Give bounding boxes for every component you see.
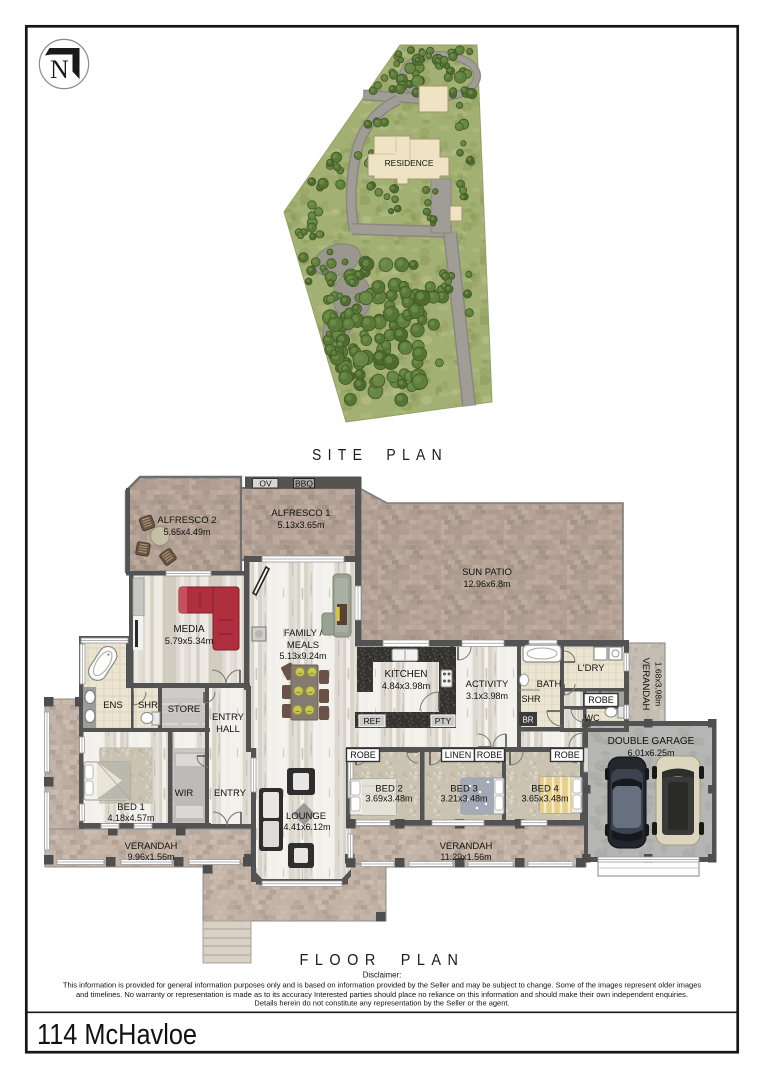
svg-text:Details herein do not constitu: Details herein do not constitute any rep…	[254, 999, 509, 1008]
svg-text:ACTIVITY: ACTIVITY	[466, 679, 509, 690]
svg-text:9.96x1.56m: 9.96x1.56m	[127, 852, 174, 862]
svg-text:MEDIA: MEDIA	[173, 624, 204, 635]
svg-text:VERANDAH: VERANDAH	[125, 841, 178, 852]
svg-text:3.1x3.98m: 3.1x3.98m	[466, 691, 508, 701]
svg-text:ALFRESCO 1: ALFRESCO 1	[271, 508, 330, 519]
svg-text:This information is provided f: This information is provided for general…	[63, 981, 702, 990]
svg-text:3.65x3.48m: 3.65x3.48m	[521, 794, 568, 804]
svg-text:MEALS: MEALS	[287, 640, 319, 651]
svg-text:RESIDENCE: RESIDENCE	[385, 158, 434, 168]
svg-text:114 McHavloe: 114 McHavloe	[37, 1019, 197, 1051]
svg-text:ROBE: ROBE	[588, 695, 614, 705]
svg-text:VERANDAH: VERANDAH	[440, 841, 493, 852]
svg-text:PTY: PTY	[435, 716, 452, 726]
svg-text:WIR: WIR	[175, 788, 194, 799]
svg-text:SITE PLAN: SITE PLAN	[312, 447, 448, 464]
svg-text:OV: OV	[259, 479, 272, 489]
svg-text:FLOOR PLAN: FLOOR PLAN	[300, 952, 465, 969]
svg-text:ENS: ENS	[103, 700, 123, 711]
svg-text:DOUBLE GARAGE: DOUBLE GARAGE	[608, 736, 695, 747]
svg-text:ROBE: ROBE	[554, 750, 580, 760]
svg-text:KITCHEN: KITCHEN	[384, 669, 427, 680]
svg-text:5.65x4.49m: 5.65x4.49m	[163, 527, 210, 537]
svg-text:N: N	[50, 55, 69, 84]
svg-text:6.01x6.25m: 6.01x6.25m	[627, 748, 674, 758]
svg-text:SUN PATIO: SUN PATIO	[462, 567, 512, 578]
svg-text:FAMILY /: FAMILY /	[284, 628, 323, 639]
svg-text:12.96x6.8m: 12.96x6.8m	[463, 579, 510, 589]
svg-text:SHR: SHR	[521, 694, 541, 704]
svg-text:HALL: HALL	[216, 724, 240, 735]
svg-text:LOUNGE: LOUNGE	[286, 811, 326, 822]
svg-text:ENTRY: ENTRY	[212, 712, 245, 723]
svg-text:Disclaimer:: Disclaimer:	[363, 971, 402, 980]
svg-text:LINEN: LINEN	[445, 750, 472, 760]
svg-text:4.84x3.98m: 4.84x3.98m	[382, 681, 431, 691]
svg-text:BR: BR	[522, 716, 533, 725]
svg-text:L'DRY: L'DRY	[578, 663, 606, 674]
svg-text:BBQ: BBQ	[295, 479, 313, 489]
svg-text:WC: WC	[585, 713, 600, 723]
svg-text:1.68x3.98m: 1.68x3.98m	[654, 662, 664, 706]
svg-text:VERANDAH: VERANDAH	[640, 658, 651, 711]
svg-text:11.29x1.56m: 11.29x1.56m	[440, 852, 491, 862]
svg-text:SHR: SHR	[138, 700, 158, 711]
svg-text:5.13x9.24m: 5.13x9.24m	[279, 651, 326, 661]
svg-text:ENTRY: ENTRY	[214, 788, 247, 799]
svg-text:3.21x3.48m: 3.21x3.48m	[440, 794, 487, 804]
svg-text:ROBE: ROBE	[350, 750, 376, 760]
svg-text:5.13x3.65m: 5.13x3.65m	[277, 520, 324, 530]
svg-text:4.18x4.57m: 4.18x4.57m	[107, 813, 154, 823]
svg-text:ROBE: ROBE	[477, 750, 503, 760]
svg-text:BATH: BATH	[537, 679, 562, 690]
svg-text:3.69x3.48m: 3.69x3.48m	[365, 794, 412, 804]
svg-text:and timelines. No warranty or: and timelines. No warranty or representa…	[76, 990, 688, 999]
svg-text:BED 1: BED 1	[117, 802, 144, 813]
svg-text:4.41x6.12m: 4.41x6.12m	[283, 822, 330, 832]
svg-text:STORE: STORE	[168, 704, 201, 715]
svg-text:ALFRESCO 2: ALFRESCO 2	[157, 515, 216, 526]
svg-text:REF: REF	[364, 716, 381, 726]
svg-text:5.79x5.34m: 5.79x5.34m	[165, 636, 214, 646]
